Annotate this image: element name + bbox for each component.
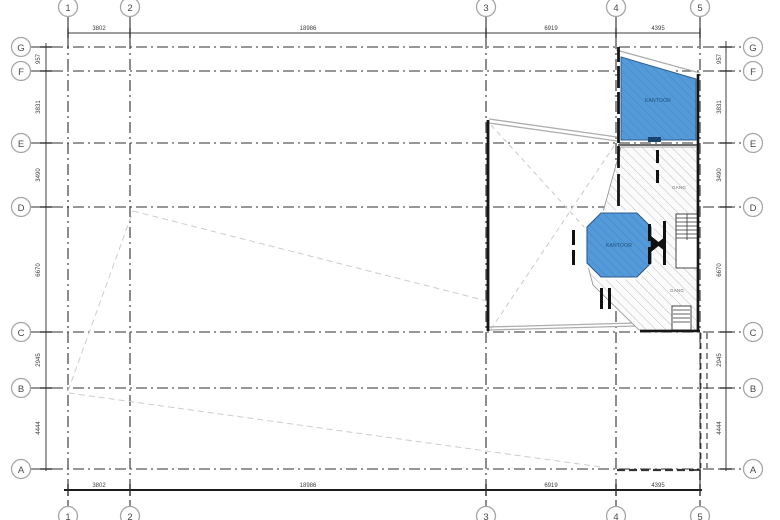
grid-bubble-bottom-1: 1 [59, 507, 78, 520]
svg-text:1: 1 [65, 3, 70, 14]
grid-bubble-left-A: A [12, 460, 31, 479]
svg-text:B: B [18, 384, 24, 395]
grid-bubbles-left: G F E D C B A [12, 38, 31, 479]
grid-bubble-bottom-5: 5 [691, 507, 710, 520]
grid-bubble-left-E: E [12, 134, 31, 153]
dim-right-D-C: 6670 [717, 263, 723, 277]
dim-top-3-4: 6919 [544, 26, 558, 32]
grid-bubble-left-F: F [12, 62, 31, 81]
room-label-office-octagon: KANTOOR [606, 243, 632, 249]
grid-bubble-left-G: G [12, 38, 31, 57]
grid-bubble-right-B: B [744, 379, 763, 398]
grid-bubble-top-3: 3 [477, 0, 496, 17]
dim-left-C-B: 2945 [36, 353, 42, 367]
grid-bubble-right-A: A [744, 460, 763, 479]
dim-right-F-E: 3831 [717, 100, 723, 114]
grid-bubble-right-E: E [744, 134, 763, 153]
door-jamb [656, 150, 659, 163]
construction-line [69, 393, 601, 467]
grid-bubbles-bottom: 1 2 3 4 5 [59, 507, 710, 520]
construction-line [133, 211, 487, 301]
dim-left-B-A: 4444 [36, 421, 42, 435]
grid-bubble-bottom-2: 2 [121, 507, 140, 520]
grid-bubble-top-4: 4 [607, 0, 626, 17]
dim-right-E-D: 3490 [717, 168, 723, 182]
floor-plan-drawing: KANTOOR KANTOOR GANG GANG [0, 0, 780, 520]
dim-left-F-E: 3831 [36, 100, 42, 114]
svg-text:D: D [750, 203, 757, 214]
wall-corner [694, 470, 700, 480]
grid-bubble-left-D: D [12, 198, 31, 217]
room-label-office-top: KANTOOR [645, 98, 671, 104]
svg-text:D: D [18, 203, 25, 214]
svg-text:E: E [750, 139, 756, 150]
dim-right-G-F: 957 [717, 53, 723, 64]
door-jamb [572, 250, 575, 265]
dim-bottom-4-5: 4395 [651, 483, 665, 489]
office-notch [648, 137, 661, 142]
corridor-label-lower: GANG [670, 288, 684, 293]
svg-text:E: E [18, 139, 24, 150]
grid-bubble-left-C: C [12, 323, 31, 342]
grid-bubble-bottom-4: 4 [607, 507, 626, 520]
door-jamb [572, 230, 575, 245]
dim-top-4-5: 4395 [651, 26, 665, 32]
door-jamb [648, 247, 651, 264]
grid-bubble-top-1: 1 [59, 0, 78, 17]
dim-bottom-2-3: 18986 [300, 483, 317, 489]
door-jamb [656, 170, 659, 183]
grid-bubble-right-F: F [744, 62, 763, 81]
dim-right-C-B: 2945 [717, 353, 723, 367]
svg-text:F: F [750, 67, 756, 78]
svg-text:1: 1 [65, 512, 70, 520]
dim-top-2-3: 18986 [300, 26, 317, 32]
grid-bubble-right-G: G [744, 38, 763, 57]
svg-text:G: G [17, 43, 24, 54]
svg-text:5: 5 [697, 3, 702, 14]
grid-bubble-left-B: B [12, 379, 31, 398]
dim-left-D-C: 6670 [36, 263, 42, 277]
svg-text:4: 4 [613, 3, 618, 14]
grid-bubble-top-2: 2 [121, 0, 140, 17]
svg-text:C: C [18, 328, 25, 339]
dim-top-1-2: 3802 [92, 26, 106, 32]
grid-bubble-bottom-3: 3 [477, 507, 496, 520]
floor-plan-page: KANTOOR KANTOOR GANG GANG [0, 0, 780, 520]
svg-text:2: 2 [127, 3, 132, 14]
dim-bottom-1-2: 3802 [92, 483, 106, 489]
svg-text:3: 3 [483, 512, 488, 520]
svg-text:F: F [18, 67, 24, 78]
door-jamb [608, 288, 611, 309]
grid-bubble-top-5: 5 [691, 0, 710, 17]
svg-text:3: 3 [483, 3, 488, 14]
door-jamb [600, 288, 603, 309]
svg-text:A: A [750, 465, 757, 476]
hidden-walls [617, 333, 707, 480]
door-jamb [648, 224, 651, 241]
svg-text:G: G [749, 43, 756, 54]
construction-line [68, 211, 133, 391]
hall-top-wall [489, 119, 617, 137]
grid-bubbles-top: 1 2 3 4 5 [59, 0, 710, 17]
corridor-label-upper: GANG [672, 185, 686, 190]
svg-text:2: 2 [127, 512, 132, 520]
dim-bottom-3-4: 6919 [544, 483, 558, 489]
svg-text:4: 4 [613, 512, 618, 520]
dim-left-E-D: 3490 [36, 168, 42, 182]
grid-bubble-right-C: C [744, 323, 763, 342]
dim-left-G-F: 957 [36, 53, 42, 64]
svg-text:5: 5 [697, 512, 702, 520]
dim-right-B-A: 4444 [717, 421, 723, 435]
hall-top-wall [489, 123, 617, 141]
grid-bubble-right-D: D [744, 198, 763, 217]
svg-text:A: A [18, 465, 25, 476]
grid-bubbles-right: G F E D C B A [744, 38, 763, 479]
construction-lines [68, 211, 601, 467]
svg-text:C: C [750, 328, 757, 339]
svg-text:B: B [750, 384, 756, 395]
